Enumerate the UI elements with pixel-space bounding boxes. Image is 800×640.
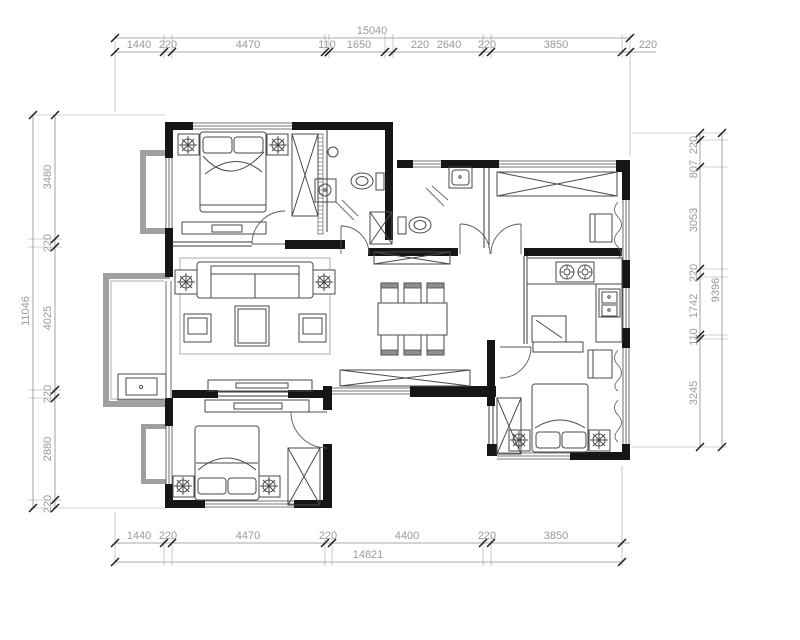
dresser xyxy=(182,222,266,234)
dining-furniture xyxy=(378,283,447,355)
study-room-furniture xyxy=(497,172,617,242)
svg-text:4470: 4470 xyxy=(236,39,260,51)
door-double-right xyxy=(491,224,521,254)
sofa xyxy=(197,262,313,298)
svg-text:807: 807 xyxy=(688,160,700,178)
balcony-bay-bedroom xyxy=(141,424,166,484)
sink xyxy=(449,167,472,188)
svg-text:220: 220 xyxy=(688,136,700,154)
dining-table xyxy=(378,303,447,335)
svg-text:220: 220 xyxy=(639,39,657,51)
dining-chair xyxy=(381,283,398,303)
door-double-left xyxy=(460,224,490,254)
stove xyxy=(556,262,594,282)
dining-chair xyxy=(427,283,444,303)
double-bed xyxy=(532,384,588,452)
dim-right-total: 9396 xyxy=(710,278,722,302)
double-bed xyxy=(200,132,266,212)
svg-text:110: 110 xyxy=(318,39,336,51)
svg-text:220: 220 xyxy=(478,39,496,51)
tv-cabinet xyxy=(208,380,312,391)
armchair xyxy=(184,314,211,342)
floor-plan-sheet: 15040 1440 220 4470 110 1650 220 2640 22… xyxy=(0,0,800,640)
svg-text:1440: 1440 xyxy=(127,39,151,51)
desk xyxy=(588,350,612,378)
svg-text:220: 220 xyxy=(42,385,54,403)
svg-text:220: 220 xyxy=(688,264,700,282)
dimension-chain-right: 220 807 3053 220 1742 110 3245 9396 xyxy=(632,129,728,451)
toilet xyxy=(398,217,431,234)
svg-text:3053: 3053 xyxy=(688,208,700,232)
door-bedroom-bottom-left xyxy=(291,412,327,448)
svg-text:220: 220 xyxy=(159,39,177,51)
fridge xyxy=(532,316,566,342)
svg-text:4400: 4400 xyxy=(395,530,419,542)
svg-text:1440: 1440 xyxy=(127,530,151,542)
balcony-living xyxy=(103,273,170,407)
dresser xyxy=(533,342,583,352)
wardrobe xyxy=(292,134,318,216)
door-bedroom-bottom-right xyxy=(500,347,531,378)
dim-top-total: 15040 xyxy=(357,25,388,37)
curtain-squiggles xyxy=(615,202,622,442)
svg-text:3850: 3850 xyxy=(544,530,568,542)
svg-text:3480: 3480 xyxy=(42,165,54,189)
wall-hatch-strip xyxy=(318,134,323,234)
dining-chair xyxy=(381,335,398,355)
svg-text:2640: 2640 xyxy=(437,39,461,51)
bedroom-bottom-left-furniture xyxy=(173,400,320,505)
coffee-table xyxy=(235,306,269,346)
kitchen-furniture xyxy=(527,258,622,342)
tv-cabinet xyxy=(205,400,309,412)
svg-text:3245: 3245 xyxy=(688,381,700,405)
dim-bottom-total: 14821 xyxy=(353,549,384,561)
wardrobe-long xyxy=(497,172,617,196)
living-room-furniture xyxy=(175,258,335,391)
svg-text:220: 220 xyxy=(478,530,496,542)
ceiling-lamp-icon xyxy=(328,147,338,157)
shoe-cabinet xyxy=(340,370,470,386)
svg-text:3850: 3850 xyxy=(544,39,568,51)
svg-text:1742: 1742 xyxy=(688,294,700,318)
dining-chair xyxy=(427,335,444,355)
svg-text:4025: 4025 xyxy=(42,306,54,330)
bedroom-bottom-right-furniture xyxy=(497,342,612,454)
shower-door xyxy=(426,186,448,206)
balcony-wash-basin xyxy=(118,374,166,400)
svg-text:220: 220 xyxy=(42,234,54,252)
dining-chair xyxy=(404,283,421,303)
svg-text:220: 220 xyxy=(319,530,337,542)
desk xyxy=(590,214,612,242)
svg-text:220: 220 xyxy=(411,39,429,51)
shower-door xyxy=(336,200,358,220)
double-bed xyxy=(195,426,259,500)
dim-left-total: 11046 xyxy=(20,296,32,326)
door-master-bedroom xyxy=(252,211,285,244)
svg-text:2880: 2880 xyxy=(42,437,54,461)
svg-text:110: 110 xyxy=(688,328,700,346)
balcony-top-left xyxy=(140,150,168,234)
svg-text:4470: 4470 xyxy=(236,530,260,542)
master-bathroom-fixtures xyxy=(315,147,384,220)
floor-plan-canvas: 15040 1440 220 4470 110 1650 220 2640 22… xyxy=(0,0,800,640)
svg-text:220: 220 xyxy=(159,530,177,542)
armchair xyxy=(299,314,326,342)
svg-text:220: 220 xyxy=(42,495,54,513)
door-hall-bath xyxy=(341,226,369,254)
dining-chair xyxy=(404,335,421,355)
kitchen-sink xyxy=(599,289,620,317)
svg-text:1650: 1650 xyxy=(347,39,371,51)
master-bedroom-furniture xyxy=(178,132,318,234)
wardrobe xyxy=(288,448,320,505)
toilet xyxy=(351,173,384,190)
